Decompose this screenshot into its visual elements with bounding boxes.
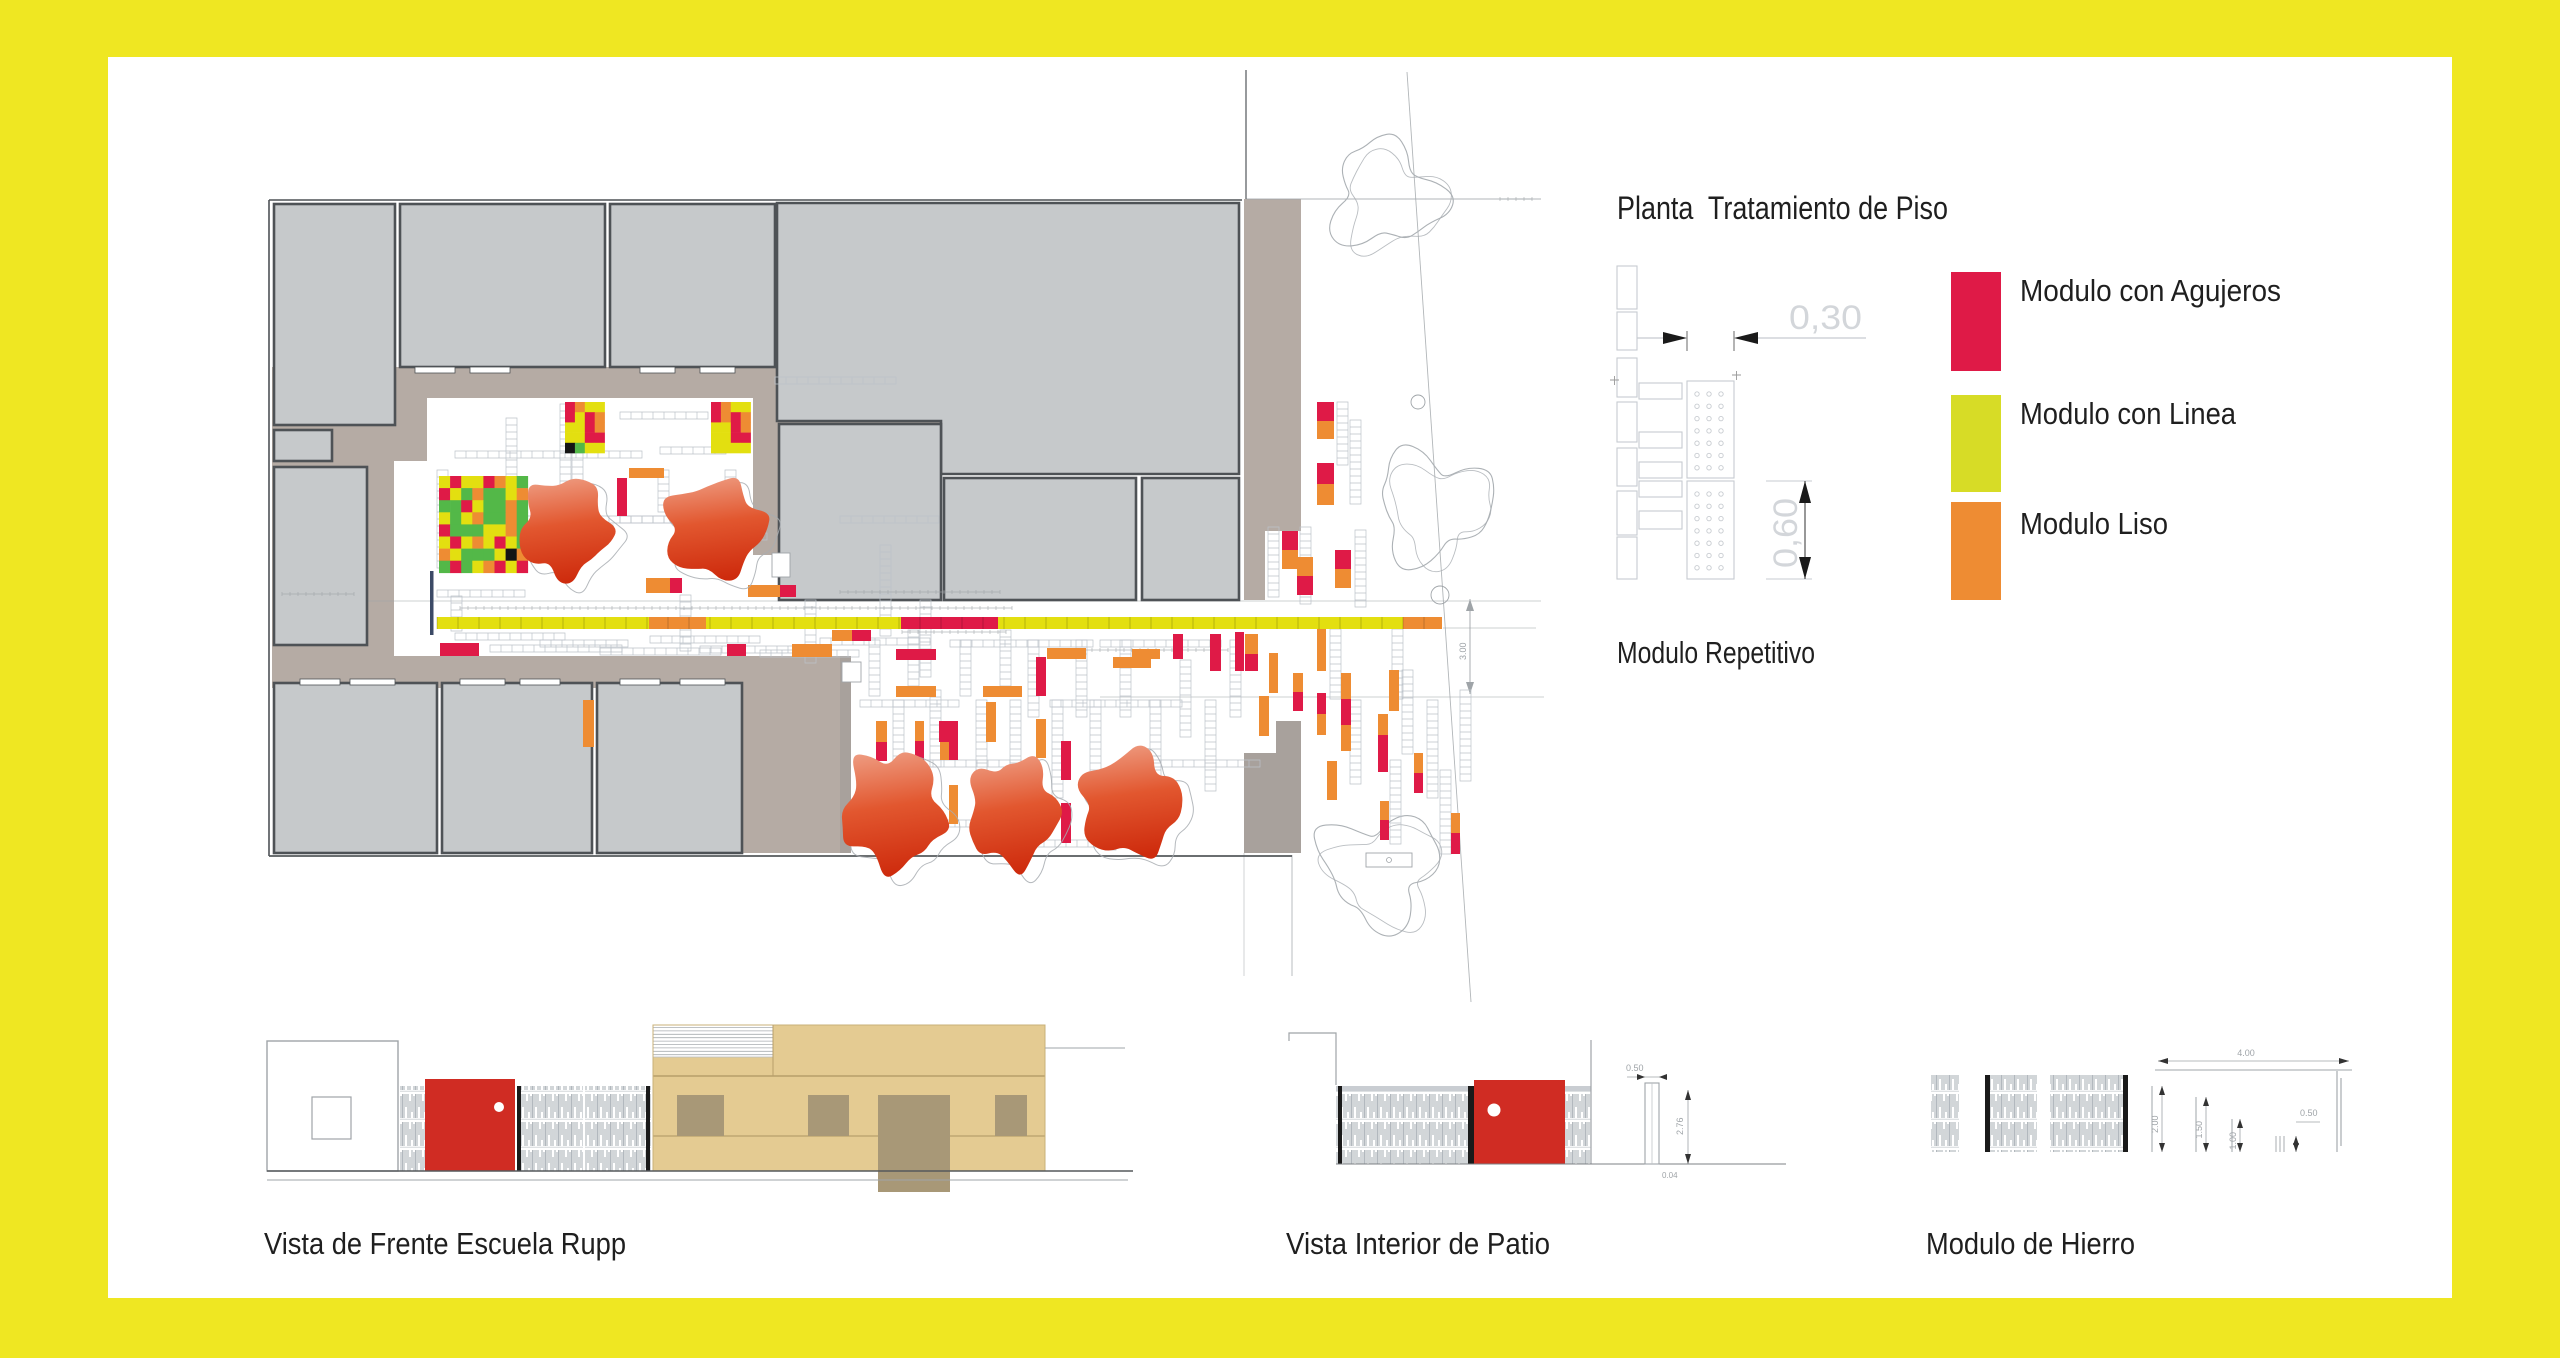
svg-text:0,30: 0,30 <box>1789 299 1862 337</box>
svg-text:Vista de Frente Escuela Rupp: Vista de Frente Escuela Rupp <box>264 1226 626 1261</box>
svg-text:Modulo con Agujeros: Modulo con Agujeros <box>2020 273 2281 308</box>
svg-text:Modulo Repetitivo: Modulo Repetitivo <box>1617 635 1815 670</box>
svg-text:0.50: 0.50 <box>1626 1063 1644 1073</box>
svg-text:0.50: 0.50 <box>2300 1108 2318 1118</box>
svg-text:Modulo Liso: Modulo Liso <box>2020 506 2168 541</box>
svg-text:0,60: 0,60 <box>1767 498 1805 568</box>
svg-text:2.00: 2.00 <box>2150 1115 2160 1133</box>
svg-text:1.00: 1.00 <box>2228 1132 2238 1150</box>
svg-text:2.76: 2.76 <box>1675 1117 1685 1135</box>
svg-text:1.50: 1.50 <box>2194 1121 2204 1139</box>
svg-text:Vista Interior de Patio: Vista Interior de Patio <box>1286 1226 1550 1261</box>
svg-text:3.00: 3.00 <box>1458 642 1468 660</box>
svg-text:0.04: 0.04 <box>1662 1171 1678 1180</box>
svg-text:Planta Tratamiento de Piso: Planta Tratamiento de Piso <box>1617 190 1948 226</box>
svg-text:Modulo con Linea: Modulo con Linea <box>2020 396 2237 431</box>
svg-text:4.00: 4.00 <box>2237 1048 2255 1058</box>
svg-text:Modulo de Hierro: Modulo de Hierro <box>1926 1226 2135 1261</box>
